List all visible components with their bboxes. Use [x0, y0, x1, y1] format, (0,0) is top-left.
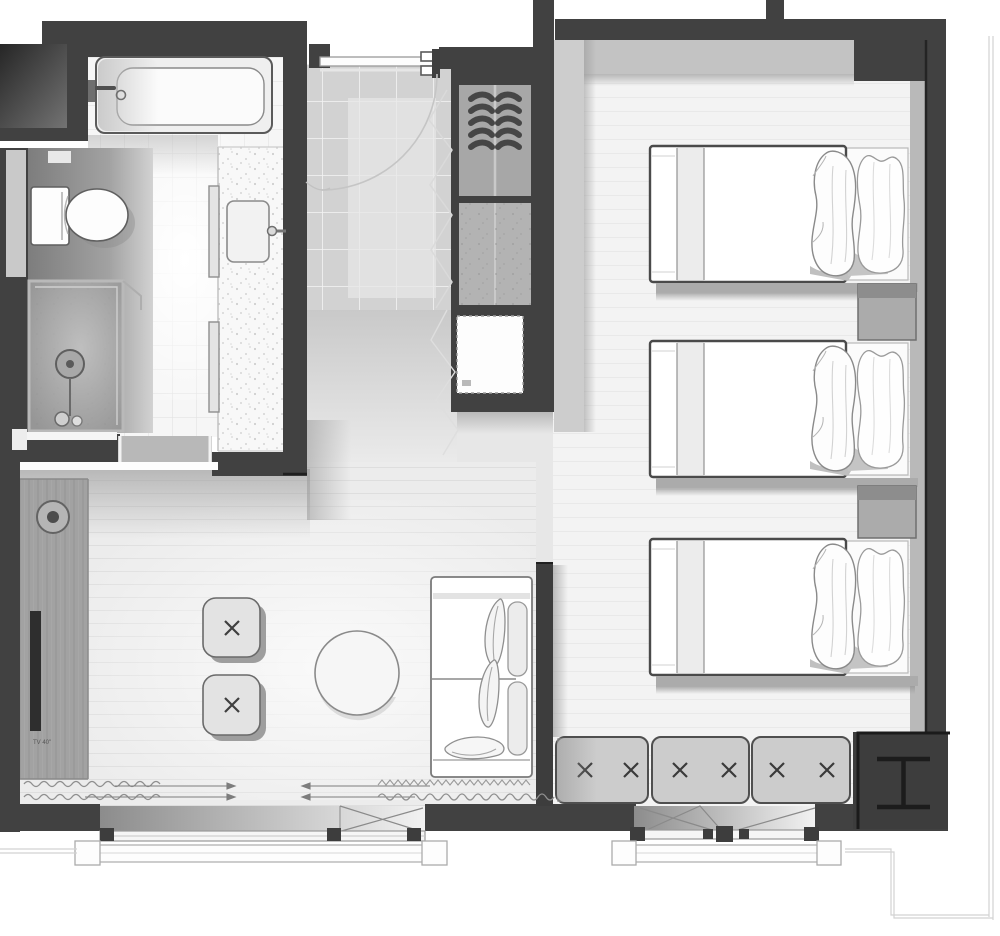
- svg-text:TV 40": TV 40": [33, 740, 51, 746]
